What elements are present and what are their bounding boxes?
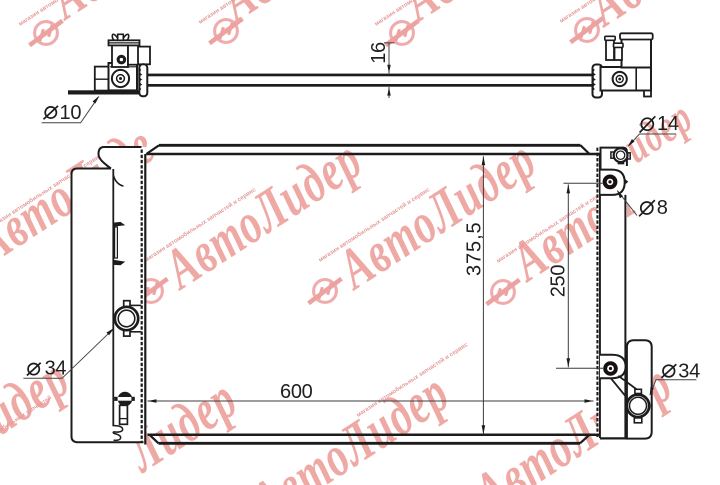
svg-text:16: 16	[368, 42, 390, 64]
svg-text:250: 250	[548, 265, 570, 298]
svg-text:34: 34	[45, 358, 67, 380]
svg-text:375,5: 375,5	[464, 221, 486, 276]
svg-text:14: 14	[657, 113, 679, 135]
svg-text:600: 600	[280, 381, 313, 403]
svg-text:10: 10	[60, 102, 82, 124]
svg-text:8: 8	[657, 197, 668, 219]
svg-text:34: 34	[678, 360, 700, 382]
